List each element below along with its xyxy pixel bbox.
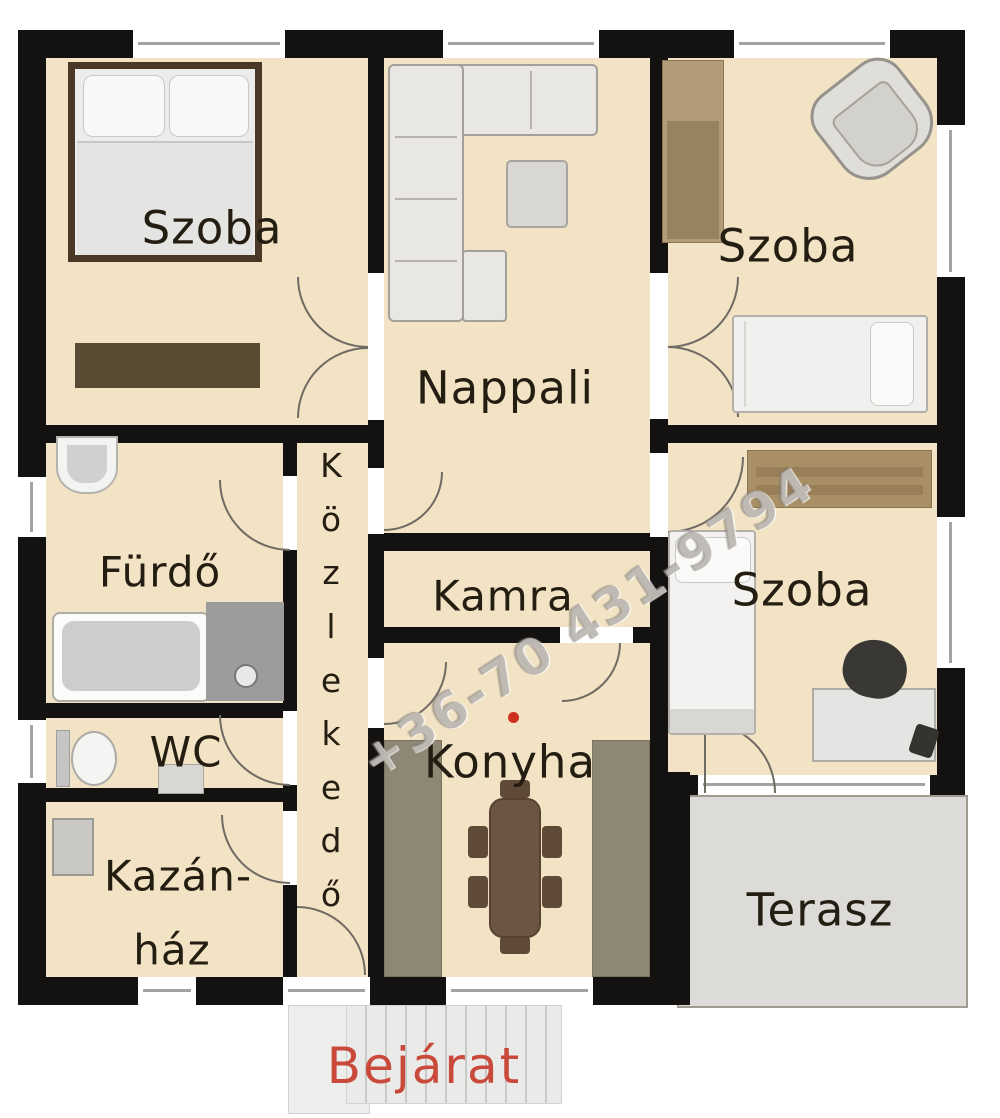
- door-gap-kazan: [283, 811, 297, 885]
- label-terasz: Terasz: [747, 884, 894, 937]
- window-left-furdo: [18, 477, 46, 537]
- chair: [542, 826, 562, 858]
- door-gap-wc: [283, 711, 297, 785]
- toilet-tank: [56, 730, 70, 787]
- chair: [542, 876, 562, 908]
- boiler: [52, 818, 94, 876]
- dining-table: [489, 798, 541, 938]
- pillow: [83, 75, 165, 137]
- bathroom-sink: [56, 436, 118, 494]
- terrace-sliding-door: [698, 775, 930, 795]
- window-bottom-konyha: [446, 977, 593, 1005]
- sofa-chaise: [462, 250, 507, 322]
- kozlekedo-letter: e: [321, 661, 341, 700]
- kozlekedo-letter: k: [321, 714, 340, 753]
- ottoman: [506, 160, 568, 228]
- kozlekedo-letter: ö: [321, 500, 341, 539]
- label-kozlekedo: K ö z l e k e d ő: [309, 446, 353, 914]
- window-bottom-kazan: [138, 977, 196, 1005]
- wardrobe-interior: [667, 121, 719, 239]
- bed-footer: [670, 709, 754, 733]
- wardrobe: [662, 60, 724, 243]
- chair: [468, 876, 488, 908]
- kozlekedo-letter: z: [322, 553, 339, 592]
- sofa-cushion-line: [395, 260, 457, 262]
- wall-terrace-corner-right: [930, 775, 965, 795]
- entrance-door: [283, 977, 370, 1005]
- kozlekedo-letter: ő: [321, 875, 341, 914]
- window-top-1: [133, 30, 285, 58]
- sofa-left: [388, 64, 464, 322]
- kozlekedo-letter: e: [321, 768, 341, 807]
- label-kazanhaz-line1: Kazán-: [104, 852, 252, 901]
- sofa-cushion-line: [395, 136, 457, 138]
- door-gap-konyha: [368, 658, 384, 728]
- label-kazanhaz-line2: ház: [133, 926, 210, 975]
- floor-plan: Szoba Nappali Szoba Fürdő Kamra Szoba WC…: [0, 0, 1000, 1118]
- bathtub-basin: [62, 621, 200, 691]
- label-szoba-top-right: Szoba: [718, 220, 859, 273]
- bed-fold-line: [744, 321, 746, 407]
- wall-terrace-side: [650, 772, 690, 1005]
- label-nappali: Nappali: [416, 362, 594, 415]
- wall-nappali-kamra: [368, 533, 668, 551]
- shower: [206, 602, 284, 701]
- rug: [75, 343, 260, 388]
- window-left-wc: [18, 720, 46, 783]
- shower-head: [234, 664, 258, 688]
- chair: [468, 826, 488, 858]
- door-gap-szobaTL: [368, 273, 384, 420]
- door-gap-szobaR: [650, 453, 668, 537]
- label-furdo: Fürdő: [99, 548, 221, 597]
- toilet-bowl: [71, 731, 117, 786]
- window-right-2: [937, 517, 965, 668]
- kozlekedo-letter: d: [321, 821, 342, 860]
- door-gap-nappali: [368, 468, 384, 534]
- wall-szoba-szoba: [650, 425, 965, 443]
- label-szoba-right: Szoba: [732, 564, 873, 617]
- wall-furdo-wc: [18, 703, 297, 718]
- bathtub: [52, 612, 210, 702]
- window-top-3: [734, 30, 890, 58]
- wall-terrace-corner-left: [650, 775, 698, 795]
- kozlekedo-letter: K: [320, 446, 342, 485]
- window-top-2: [443, 30, 599, 58]
- smoke-detector-dot: [508, 712, 519, 723]
- single-bed: [732, 315, 928, 413]
- pillow: [169, 75, 249, 137]
- chair: [500, 936, 530, 954]
- window-right-1: [937, 125, 965, 277]
- sofa-cushion-line: [530, 71, 532, 129]
- label-szoba-top-left: Szoba: [142, 202, 283, 255]
- kitchen-counter-right: [592, 740, 650, 977]
- door-gap-szobaTR: [650, 273, 668, 419]
- door-gap-furdo: [283, 476, 297, 550]
- sink-basin: [67, 445, 107, 483]
- pillow: [870, 322, 914, 406]
- sofa-cushion-line: [395, 198, 457, 200]
- label-bejarat: Bejárat: [327, 1037, 521, 1095]
- label-wc: WC: [150, 728, 223, 777]
- kozlekedo-letter: l: [326, 607, 335, 646]
